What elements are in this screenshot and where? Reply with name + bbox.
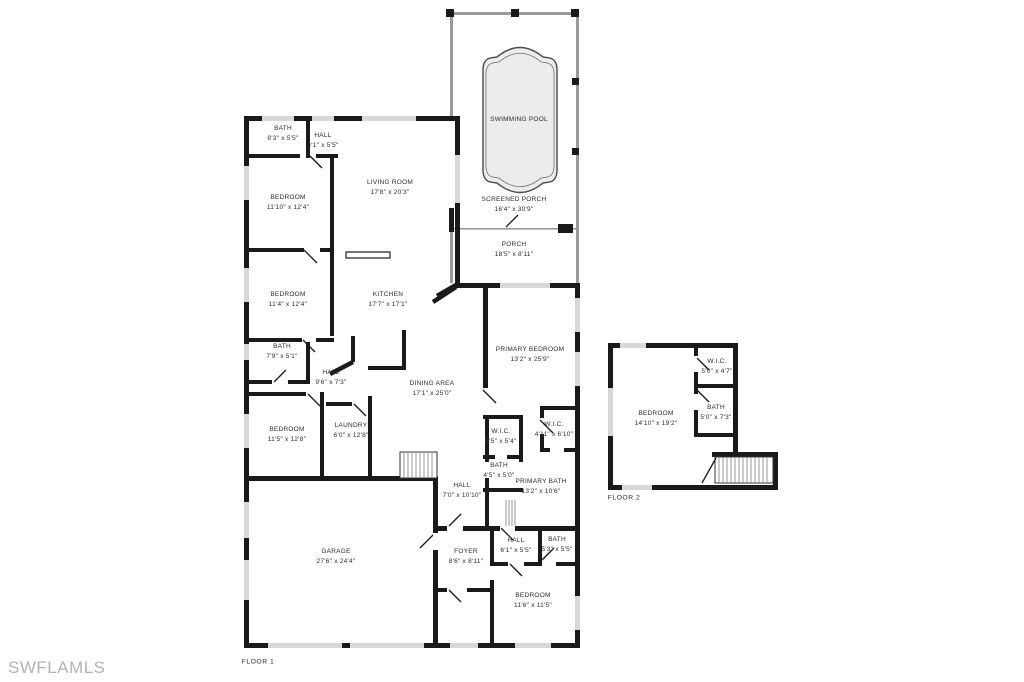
room-label-garage: GARAGE 27'6" x 24'4" xyxy=(317,547,356,567)
room-label-bath-1: BATH 8'3" x 5'5" xyxy=(267,124,298,144)
room-label-screened-porch: SCREENED PORCH 16'4" x 30'9" xyxy=(482,195,547,215)
room-label-porch: PORCH 18'5" x 8'11" xyxy=(495,240,533,260)
floor-plan-drawing xyxy=(0,0,1024,682)
room-label-living-room: LIVING ROOM 17'8" x 20'3" xyxy=(367,178,413,198)
room-label-bedroom-1: BEDROOM 11'10" x 12'4" xyxy=(267,193,309,213)
room-label-hall-3: HALL 7'0" x 10'10" xyxy=(443,481,482,501)
room-label-bath-4: BATH 5'3" x 5'5" xyxy=(541,535,572,555)
room-label-bedroom-2: BEDROOM 11'4" x 12'4" xyxy=(269,290,307,310)
room-label-primary-bedroom: PRIMARY BEDROOM 13'2" x 25'9" xyxy=(496,345,565,365)
stairs-floor1 xyxy=(400,452,437,478)
room-label-bedroom-4: BEDROOM 11'6" x 11'5" xyxy=(514,591,552,611)
room-label-hall-4: HALL 6'1" x 5'5" xyxy=(500,536,531,556)
room-label-hall-1: HALL 4'1" x 5'5" xyxy=(307,131,338,151)
room-label-bath-2: BATH 7'9" x 5'1" xyxy=(266,342,297,362)
swflamls-watermark: SWFLAMLS xyxy=(8,658,106,678)
room-label-hall-2: HALL 9'6" x 7'3" xyxy=(315,368,346,388)
stairs-floor2 xyxy=(702,457,773,483)
room-label-wic-2: W.I.C. 4'11" x 6'10" xyxy=(535,420,573,440)
room-label-kitchen: KITCHEN 17'7" x 17'1" xyxy=(369,290,408,310)
room-label-dining-area: DINING AREA 17'1" x 25'0" xyxy=(410,379,455,399)
room-label-laundry: LAUNDRY 6'0" x 12'8" xyxy=(333,421,368,441)
room-label-wic-1: W.I.C. 4'5" x 5'4" xyxy=(485,427,516,447)
room-label-primary-bath: PRIMARY BATH 13'2" x 10'6" xyxy=(515,477,566,497)
room-label-bath-5: BATH 5'0" x 7'3" xyxy=(700,403,731,423)
room-label-wic-3: W.I.C. 5'0" x 4'7" xyxy=(701,357,732,377)
room-label-bedroom-3: BEDROOM 11'5" x 12'8" xyxy=(268,425,306,445)
floor1-label: FLOOR 1 xyxy=(242,659,275,666)
room-label-bedroom-5: BEDROOM 14'10" x 19'2" xyxy=(635,409,678,429)
room-label-bath-3: BATH 4'5" x 5'0" xyxy=(483,461,514,481)
room-label-foyer: FOYER 8'6" x 8'11" xyxy=(449,547,484,567)
room-label-swimming-pool: SWIMMING POOL xyxy=(490,115,548,125)
floor2-label: FLOOR 2 xyxy=(608,495,641,502)
